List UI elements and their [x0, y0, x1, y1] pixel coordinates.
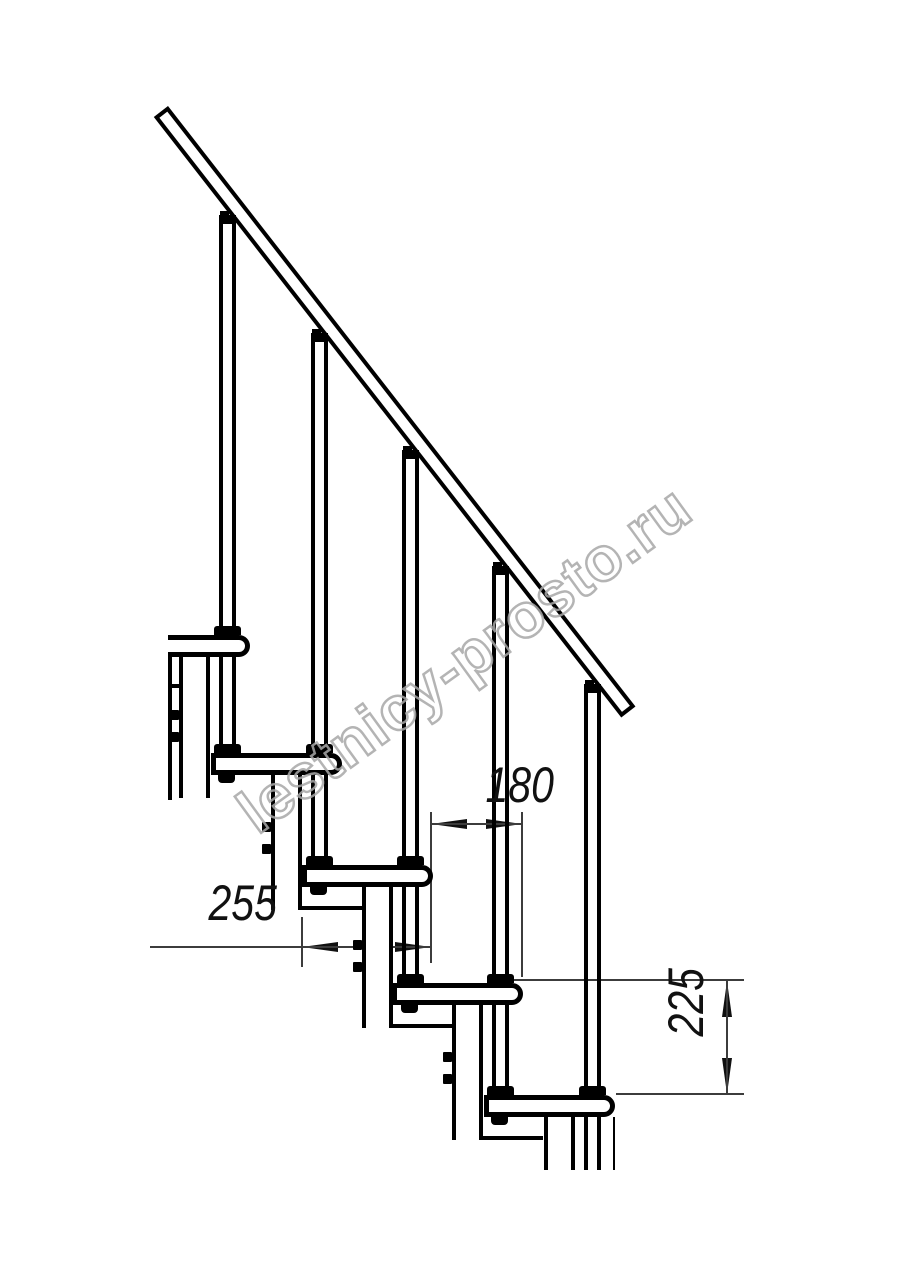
pipe-column	[584, 1117, 601, 1170]
dimension-line-225	[726, 981, 728, 1094]
tread	[302, 865, 433, 887]
baluster	[219, 223, 236, 626]
baluster	[311, 341, 328, 744]
pipe-flange	[397, 974, 424, 983]
wall-bracket	[170, 732, 179, 742]
dimension-value-255: 255	[208, 879, 276, 927]
baluster-flange	[487, 974, 514, 983]
baluster-flange	[579, 1086, 606, 1095]
pipe-column	[219, 657, 236, 744]
tread-edge-line	[613, 1117, 615, 1170]
dimension-value-225: 225	[662, 968, 710, 1036]
bolt-tab	[491, 1117, 508, 1125]
pipe-flange	[487, 1086, 514, 1095]
support-column	[544, 1117, 575, 1170]
watermark: lestnicy-prosto.ru	[214, 461, 716, 858]
tread	[484, 1095, 615, 1117]
support-column	[362, 887, 393, 1028]
pipe-column	[402, 887, 419, 974]
support-column	[179, 657, 210, 798]
bolt-tab	[310, 887, 327, 895]
baluster-connector	[493, 562, 502, 568]
bolt-tab	[401, 1005, 418, 1013]
pipe-flange	[214, 744, 241, 753]
pipe-column	[492, 1005, 509, 1086]
dimension-value-180: 180	[485, 761, 553, 809]
baluster-connector	[312, 329, 321, 335]
pipe-flange	[306, 856, 333, 865]
baluster-connector	[220, 211, 229, 217]
wall-bracket	[170, 710, 179, 720]
baluster	[584, 692, 601, 1086]
support-column	[452, 1005, 483, 1140]
baluster-flange	[214, 626, 241, 635]
staircase-drawing: 180 255 225 lestnicy-prosto.ru	[0, 0, 914, 1280]
baluster-connector	[585, 680, 594, 686]
wall-bracket	[353, 962, 362, 972]
baluster-flange	[397, 856, 424, 865]
dimension-label-225: 225	[662, 984, 710, 1104]
wall-bracket	[443, 1074, 452, 1084]
wall-bracket	[353, 940, 362, 950]
wall-bracket	[443, 1052, 452, 1062]
extension-line	[301, 917, 303, 967]
baluster-connector	[403, 446, 412, 452]
extension-line	[521, 812, 523, 977]
extension-line	[430, 812, 432, 963]
tread	[392, 983, 523, 1005]
tread	[168, 635, 250, 657]
